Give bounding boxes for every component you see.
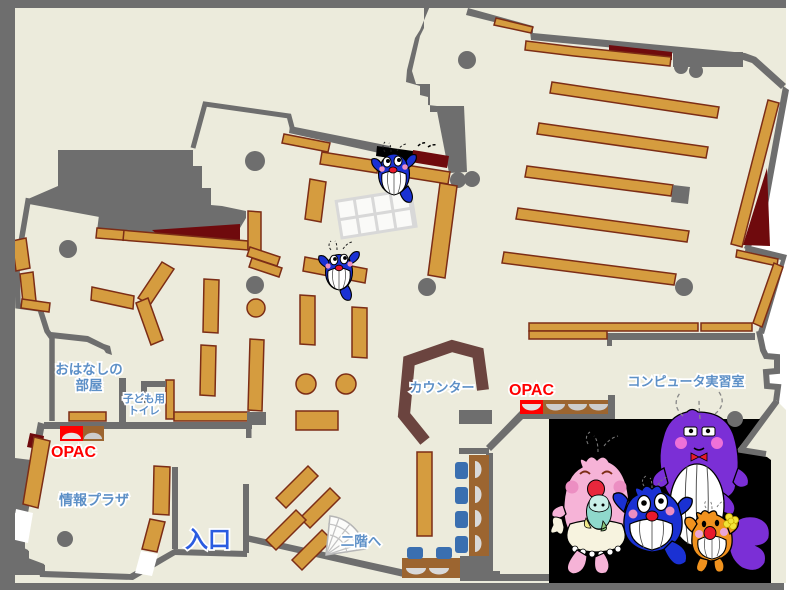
- svg-text:カウンター: カウンター: [409, 380, 474, 395]
- svg-text:情報プラザ: 情報プラザ: [59, 492, 129, 508]
- svg-text:OPAC: OPAC: [509, 382, 554, 399]
- svg-text:トイレ: トイレ: [128, 405, 160, 417]
- svg-text:コンピュータ実習室: コンピュータ実習室: [627, 374, 744, 389]
- svg-text:おはなしの: おはなしの: [55, 362, 123, 377]
- svg-text:二階へ: 二階へ: [341, 533, 382, 549]
- svg-text:部屋: 部屋: [76, 377, 103, 393]
- svg-text:子ども用: 子ども用: [123, 392, 165, 405]
- svg-text:入口: 入口: [185, 526, 231, 552]
- svg-text:OPAC: OPAC: [51, 444, 96, 461]
